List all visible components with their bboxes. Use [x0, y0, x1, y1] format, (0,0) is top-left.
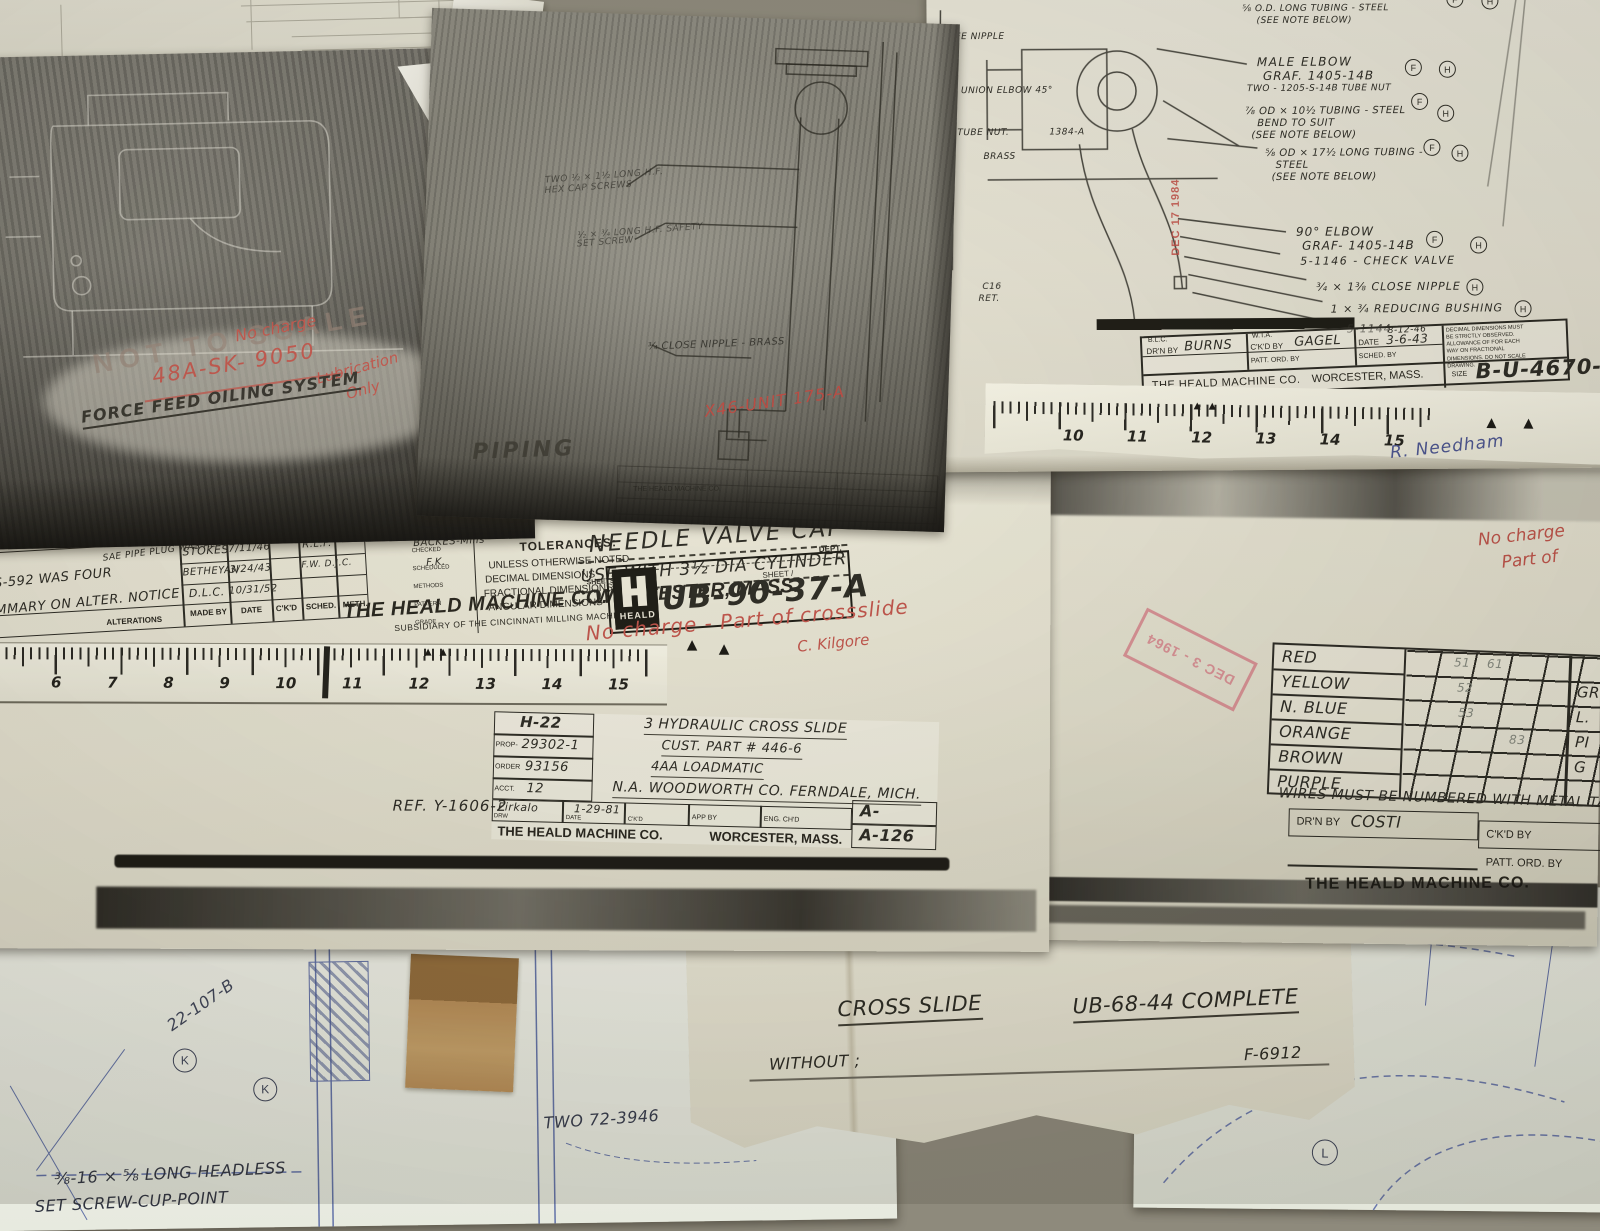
a-number: A-126 [859, 826, 914, 845]
col-header: MADE BY [190, 608, 227, 619]
wire-title-block: DR'N BY COSTI C'K'D BY DATE PATT. ORD. B… [1288, 808, 1600, 875]
fragment-tubing: ⅝ O.D. LONG TUBING - STEEL [1242, 3, 1388, 14]
fragment-1384a: 1384-A [1049, 127, 1084, 137]
drn-value: COSTI [1350, 813, 1401, 832]
app-label: APP BY [692, 814, 717, 822]
annotation-male-elbow-nut: TWO - 1205-S-14B TUBE NUT [1247, 83, 1391, 94]
marker-circle-f: F [1411, 93, 1428, 110]
photocopy-smudge-bottom2 [1025, 905, 1585, 930]
eng-label: ENG. CH'D [764, 816, 800, 825]
ruler-number: 15 [608, 675, 629, 693]
ruler-number: 12 [1191, 428, 1212, 446]
annotation-90-elbow-graf: GRAF- 1405-14B [1302, 239, 1415, 253]
marker-circle-h: H [1437, 105, 1454, 122]
side-row-value: F.K. [426, 557, 446, 569]
wire-cell-value: 61 [1487, 658, 1504, 672]
annotation-see-note-1: (SEE NOTE BELOW) [1251, 129, 1356, 141]
marker-circle-h: H [1515, 300, 1532, 317]
marker-circle-f: F [1426, 231, 1443, 248]
company-name-small: THE HEALD MACHINE CO. [497, 824, 663, 843]
ruler-number: 10 [275, 674, 296, 692]
date-stamp-1984: DEC 17 1984 [1170, 179, 1183, 256]
marker-triangle: ▲ [715, 639, 733, 660]
date-stamp-1964: DEC 3 - 1964 [1123, 608, 1258, 712]
photocopy-smudge-top [1010, 462, 1600, 521]
wire-row-label: YELLOW [1281, 673, 1350, 694]
ruler-marker-triangle: ▲ [437, 645, 449, 659]
scan-bar-1 [114, 855, 949, 871]
photocopied-ruler-left: 6 7 8 9 10 11 12 13 14 15 ▲ ▲ [0, 642, 667, 705]
col-header: SCHED. [306, 602, 337, 613]
order-label: ORDER [495, 763, 520, 771]
marker-circle-f: F [1423, 139, 1440, 156]
col-header: C'K'D [276, 604, 298, 614]
prop-label: PROP- [495, 741, 517, 749]
drn-super: B.L.C. [1148, 336, 1168, 345]
ruler-number: 13 [475, 675, 496, 693]
ruler-number: 12 [408, 675, 429, 693]
wire-right-fragment: G [1574, 759, 1587, 776]
marker-triangle: ▲ [683, 635, 701, 656]
marker-circle-h: H [1439, 61, 1456, 78]
red-signature-kilgore: C. Kilgore [797, 631, 871, 655]
wire-color-table: RED YELLOW N. BLUE ORANGE BROWN PURPLE 5… [1267, 642, 1600, 809]
marker-triangle: ▲ [1483, 413, 1500, 433]
ruler-marker-triangle: ▲ [422, 645, 434, 659]
ruler-number: 9 [219, 674, 230, 692]
fragment-c16: C16 [982, 282, 1001, 292]
ckd-label: C'K'D [628, 817, 643, 824]
wire-row-label: N. BLUE [1280, 698, 1348, 718]
prop-value: 29302-1 [521, 738, 579, 754]
date-stamp-1964-text: DEC 3 - 1964 [1144, 631, 1238, 689]
date-entry: 3/24/43 [229, 562, 272, 576]
marker-circle-f: F [1405, 59, 1422, 76]
fragment-tube-nut: TUBE NUT. [957, 128, 1009, 138]
drn-label: DR'N BY [1296, 816, 1340, 829]
part-title-line1: 3 HYDRAULIC CROSS SLIDE [644, 717, 847, 740]
marker-circle-h: H [1470, 236, 1487, 253]
ruler-number: 11 [1127, 427, 1148, 445]
wire-cell-value: 53 [1458, 707, 1475, 721]
made-by-entry: D.L.C. [189, 586, 225, 600]
date-label: DATE [566, 815, 582, 822]
annotation-male-elbow-graf: GRAF. 1405-14B [1263, 69, 1374, 83]
fragment-brass: BRASS [983, 152, 1015, 162]
part-title-line3: 4AA LOADMATIC [651, 760, 764, 779]
made-by-entry: STOKES [182, 544, 229, 559]
hatched-section [308, 961, 370, 1082]
wire-cell-value: 52 [1457, 681, 1474, 695]
fragment-see-note: (SEE NOTE BELOW) [1257, 15, 1352, 26]
photo-of-blueprints: 22-107-B K K ⅜-16 × ⅝ LONG HEADLESS SET … [0, 0, 1600, 1204]
ruler-marker-triangle: ▲ [1191, 398, 1203, 412]
ruler-number: 8 [163, 674, 174, 692]
ruler-number: 14 [1319, 430, 1340, 448]
wire-right-fragment: L. [1576, 709, 1591, 726]
marker-circle-h: H [1451, 145, 1468, 162]
acct-value: 12 [526, 782, 544, 797]
part-title-line2: CUST. PART # 446-6 [661, 739, 802, 759]
order-value: 93156 [525, 760, 569, 776]
wire-row-label: RED [1282, 648, 1318, 667]
alteration-row: S-592 WAS FOUR [0, 567, 113, 592]
drawing-number-bu4670: B-U-4670-H [1475, 354, 1600, 384]
ruler-number: 10 [1063, 426, 1084, 444]
annotation-steel: STEEL [1276, 160, 1309, 171]
marker-triangle: ▲ [1520, 414, 1537, 434]
patt-label: PATT. ORD. BY [1251, 356, 1300, 366]
company-city: WORCESTER, MASS. [1311, 369, 1423, 386]
wire-right-fragment: GR [1577, 684, 1600, 702]
sched-entry: F.W. D.J.C. [301, 558, 352, 571]
annotation-bend-to-suit: BEND TO SUIT [1257, 118, 1334, 130]
ref-number: REF. Y-1606-2 [393, 798, 508, 815]
cross-slide-title-block: H-22 PROP- 29302-1 ORDER 93156 ACCT. 12 … [491, 711, 939, 850]
wire-right-fragment: PI [1575, 734, 1590, 751]
acct-label: ACCT. [494, 785, 514, 793]
ruler-numbers: 6 7 8 9 10 11 12 13 14 15 [51, 673, 629, 693]
ckd-super: W.T.A. [1252, 332, 1273, 341]
ruler-number: 7 [107, 674, 118, 692]
ruler-number: 13 [1255, 429, 1276, 447]
wire-row-label: ORANGE [1279, 723, 1352, 744]
company-city-small: WORCESTER, MASS. [709, 830, 842, 848]
marker-circle-h: H [1466, 279, 1483, 296]
wire-cell-value: 83 [1509, 734, 1526, 748]
cross-slide-title: CROSS SLIDE [837, 992, 983, 1026]
ruler-marker-triangle: ▲ [1206, 399, 1218, 413]
sched-label: SCHED. BY [1359, 352, 1397, 361]
annotation-close-nipple: ¾ × 1⅜ CLOSE NIPPLE [1316, 281, 1460, 294]
sheet-wire-colors: No charge Part of DEC 3 - 1964 RED YELLO… [1005, 434, 1600, 946]
wire-row-label: BROWN [1278, 748, 1344, 768]
tolerances-title: TOLERANCES: [519, 536, 617, 554]
balloon-l: L [1312, 1139, 1338, 1165]
size-label: SIZE [1452, 371, 1468, 379]
date-value: 1-29-81 [574, 803, 621, 816]
drn-underline [1288, 864, 1478, 870]
annotation-reducing-bushing: 1 × ¾ REDUCING BUSHING [1331, 302, 1504, 316]
h22-value: H-22 [520, 714, 562, 732]
scan-bar-2 [96, 887, 1036, 932]
ckd-label: C'K'D BY [1486, 829, 1531, 842]
annotation-tubing-58: ⅝ OD × 17½ LONG TUBING - [1265, 147, 1423, 159]
annotation-tubing-78: ⅞ OD × 10½ TUBING - STEEL [1245, 105, 1405, 117]
ruler-number: 6 [51, 673, 62, 691]
a-blank: A- [860, 802, 880, 820]
annotation-see-note-2: (SEE NOTE BELOW) [1272, 171, 1377, 183]
cross-slide-subline-end: F-6912 [1244, 1044, 1303, 1065]
red-part-of-note: Part of [1501, 548, 1559, 573]
fragment-ret: RET. [978, 294, 999, 304]
cross-slide-number: UB-68-44 COMPLETE [1072, 985, 1299, 1023]
alterations-header: ALTERATIONS [106, 616, 162, 628]
annotation-90-elbow: 90° ELBOW [1296, 225, 1374, 239]
dark-photostat-middle: TWO ½ × 1½ LONG H.F. HEX CAP SCREWS ½ × … [416, 8, 960, 532]
fragment-union-elbow: UNION ELBOW 45° [961, 86, 1053, 97]
ruler-number: 14 [542, 675, 563, 693]
ruler-number: 11 [342, 674, 363, 692]
wire-cell-value: 51 [1454, 656, 1471, 670]
annotation-male-elbow: MALE ELBOW [1257, 55, 1353, 69]
col-header: DATE [241, 606, 263, 616]
annotation-check-valve: 5-1146 - CHECK VALVE [1300, 255, 1455, 268]
masking-tape [405, 954, 519, 1093]
patt-label: PATT. ORD. BY [1486, 857, 1563, 871]
